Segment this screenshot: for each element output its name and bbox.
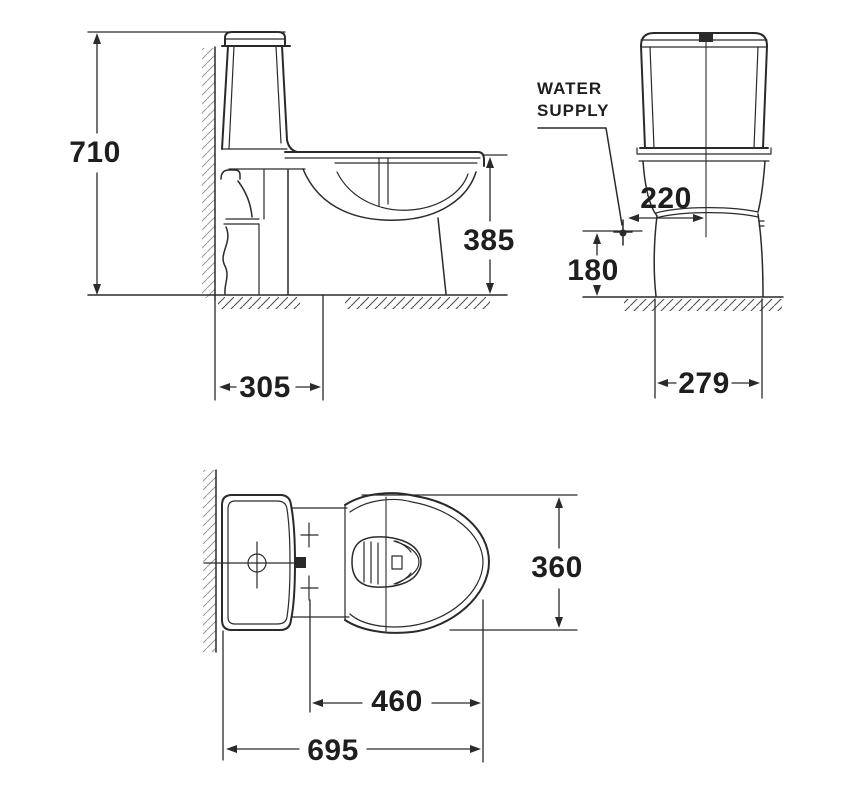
top-bowl — [345, 493, 489, 633]
dim-label-supply-to-centerline: 220 — [640, 184, 692, 214]
dim-label-bolt-to-front: 460 — [371, 687, 423, 717]
water-supply-label: WATER SUPPLY — [537, 78, 609, 122]
side-tank — [222, 32, 297, 152]
water-supply-leader — [538, 128, 632, 245]
front-floor-hatch — [624, 299, 782, 311]
dim-label-rim-height: 385 — [463, 226, 515, 256]
technical-drawing-page: 710 385 305 220 180 279 360 460 695 WATE… — [0, 0, 850, 811]
water-supply-label-line2: SUPPLY — [537, 100, 609, 122]
dim-label-outlet-offset: 305 — [239, 373, 291, 403]
dim-label-bowl-width: 360 — [531, 553, 583, 583]
side-wall-hatch — [202, 48, 215, 298]
top-fixing-square — [295, 557, 306, 568]
toilet-dimension-drawing — [0, 0, 850, 811]
water-supply-label-line1: WATER — [537, 78, 609, 100]
top-hinge — [204, 505, 349, 620]
side-pedestal — [221, 170, 446, 294]
dim-label-overall-depth: 695 — [307, 736, 359, 766]
side-seat-and-rim — [229, 152, 484, 220]
dim-label-overall-height: 710 — [69, 138, 121, 168]
side-view — [88, 32, 507, 400]
top-view — [203, 470, 577, 762]
side-floor-hatch-left — [218, 297, 300, 309]
dim-label-base-width: 279 — [678, 369, 730, 399]
dim-label-supply-height: 180 — [567, 256, 619, 286]
side-floor-hatch-right — [345, 297, 490, 309]
top-wall-hatch — [203, 470, 216, 652]
